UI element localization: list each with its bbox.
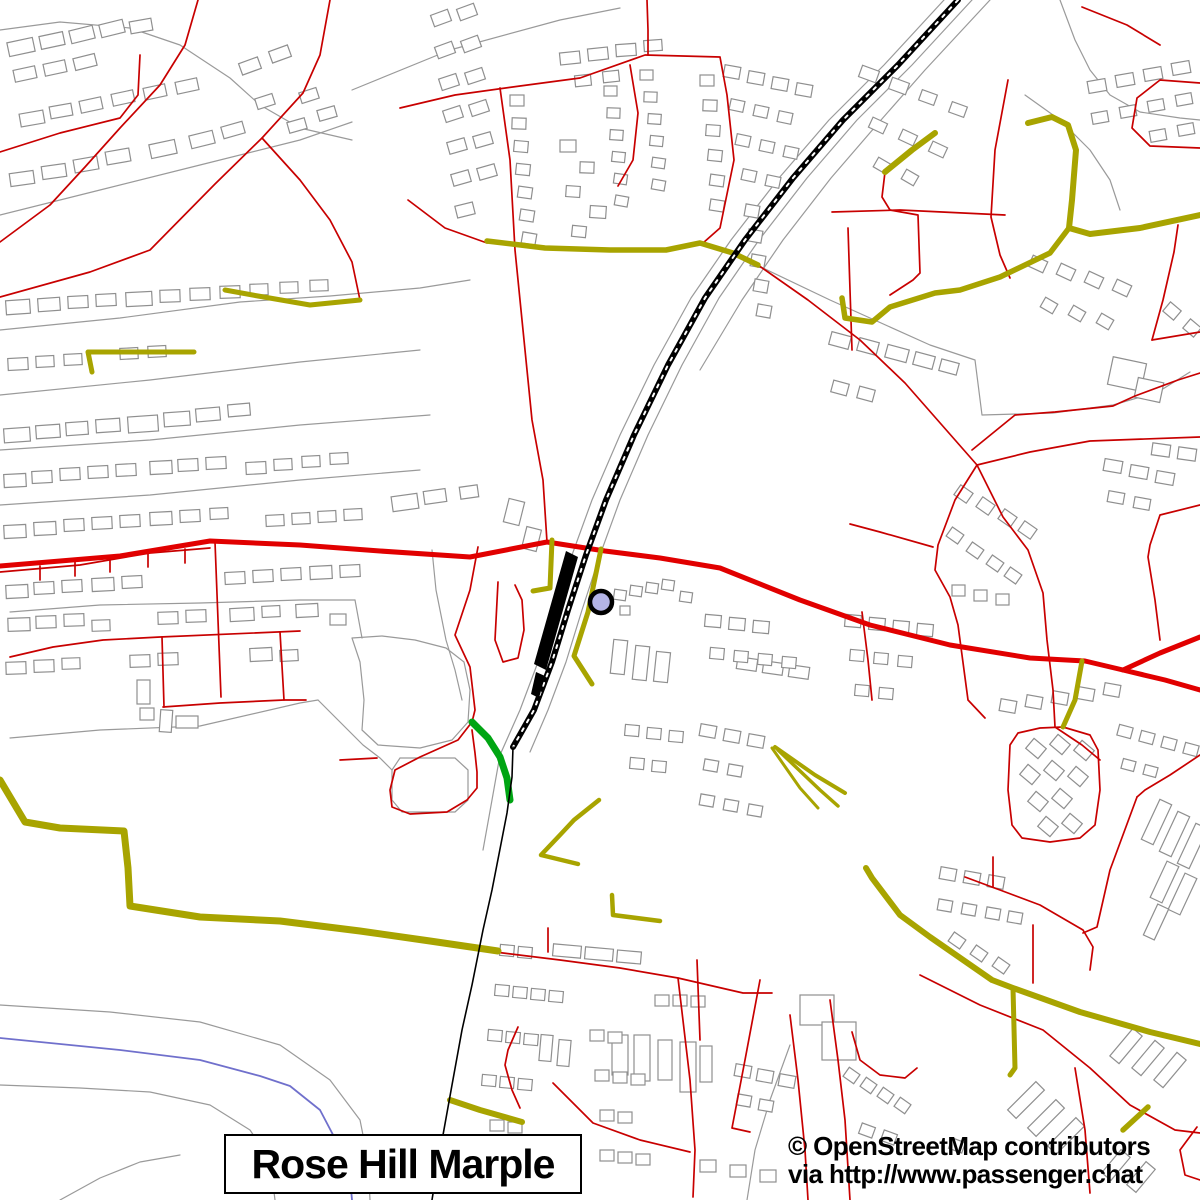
map-title-box: Rose Hill Marple xyxy=(224,1134,582,1194)
station-marker[interactable] xyxy=(590,591,612,613)
attribution-line2: via http://www.passenger.chat xyxy=(788,1161,1150,1189)
map-title: Rose Hill Marple xyxy=(252,1141,555,1188)
map-viewport: Rose Hill Marple © OpenStreetMap contrib… xyxy=(0,0,1200,1200)
map-canvas[interactable] xyxy=(0,0,1200,1200)
attribution-line1: © OpenStreetMap contributors xyxy=(788,1133,1150,1161)
attribution: © OpenStreetMap contributors via http://… xyxy=(788,1133,1150,1188)
track-paths-layer xyxy=(0,117,1200,1130)
